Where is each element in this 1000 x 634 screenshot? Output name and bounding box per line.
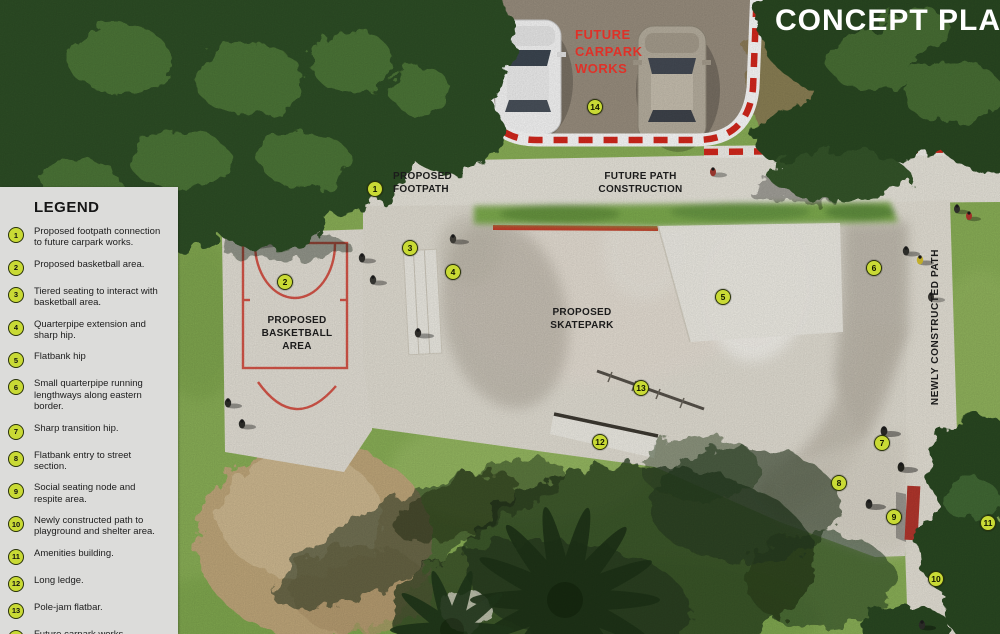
legend-item-text: Flatbank hip bbox=[34, 351, 164, 362]
legend-item-number: 13 bbox=[8, 603, 24, 619]
legend-item-number: 4 bbox=[8, 320, 24, 336]
legend-item-text: Quarterpipe extension and sharp hip. bbox=[34, 319, 164, 342]
legend-item-number: 7 bbox=[8, 424, 24, 440]
legend-list: 1Proposed footpath connection to future … bbox=[0, 226, 178, 634]
legend-item-2: 2Proposed basketball area. bbox=[8, 259, 178, 276]
label-newly-constructed-path: NEWLY CONSTRUCTED PATH bbox=[930, 227, 944, 427]
legend-panel: LEGEND 1Proposed footpath connection to … bbox=[0, 187, 178, 634]
legend-item-number: 10 bbox=[8, 516, 24, 532]
legend-item-number: 11 bbox=[8, 549, 24, 565]
legend-item-8: 8Flatbank entry to street section. bbox=[8, 450, 178, 473]
legend-item-14: 14Future carpark works. bbox=[8, 629, 178, 634]
legend-item-number: 9 bbox=[8, 483, 24, 499]
legend-item-1: 1Proposed footpath connection to future … bbox=[8, 226, 178, 249]
screenshot-root: CONCEPT PLAN FUTURE CARPARK WORKS PROPOS… bbox=[0, 0, 1000, 634]
legend-item-text: Proposed footpath connection to future c… bbox=[34, 226, 164, 249]
legend-item-number: 1 bbox=[8, 227, 24, 243]
plan-marker-13: 13 bbox=[633, 380, 649, 396]
plan-marker-3: 3 bbox=[402, 240, 418, 256]
label-proposed-basketball-area: PROPOSED BASKETBALL AREA bbox=[245, 314, 349, 354]
legend-item-12: 12Long ledge. bbox=[8, 575, 178, 592]
legend-item-number: 2 bbox=[8, 260, 24, 276]
legend-item-text: Flatbank entry to street section. bbox=[34, 450, 164, 473]
plan-marker-4: 4 bbox=[445, 264, 461, 280]
legend-item-text: Pole-jam flatbar. bbox=[34, 602, 164, 613]
plan-marker-6: 6 bbox=[866, 260, 882, 276]
legend-item-11: 11Amenities building. bbox=[8, 548, 178, 565]
plan-marker-11: 11 bbox=[980, 515, 996, 531]
legend-item-text: Amenities building. bbox=[34, 548, 164, 559]
legend-item-text: Newly constructed path to playground and… bbox=[34, 515, 164, 538]
legend-item-4: 4Quarterpipe extension and sharp hip. bbox=[8, 319, 178, 342]
plan-marker-12: 12 bbox=[592, 434, 608, 450]
label-future-path-construction: FUTURE PATH CONSTRUCTION bbox=[583, 170, 698, 196]
label-proposed-skatepark: PROPOSED SKATEPARK bbox=[530, 306, 634, 332]
legend-item-10: 10Newly constructed path to playground a… bbox=[8, 515, 178, 538]
page-title: CONCEPT PLAN bbox=[775, 4, 1000, 38]
plan-marker-14: 14 bbox=[587, 99, 603, 115]
legend-item-number: 14 bbox=[8, 630, 24, 634]
legend-item-6: 6Small quarterpipe running lengthways al… bbox=[8, 378, 178, 412]
legend-item-7: 7Sharp transition hip. bbox=[8, 423, 178, 440]
legend-item-text: Long ledge. bbox=[34, 575, 164, 586]
legend-item-text: Future carpark works. bbox=[34, 629, 164, 634]
plan-marker-8: 8 bbox=[831, 475, 847, 491]
legend-item-text: Proposed basketball area. bbox=[34, 259, 164, 270]
legend-item-text: Sharp transition hip. bbox=[34, 423, 164, 434]
legend-item-5: 5Flatbank hip bbox=[8, 351, 178, 368]
legend-item-13: 13Pole-jam flatbar. bbox=[8, 602, 178, 619]
plan-marker-1: 1 bbox=[367, 181, 383, 197]
legend-item-number: 5 bbox=[8, 352, 24, 368]
legend-item-3: 3Tiered seating to interact with basketb… bbox=[8, 286, 178, 309]
label-future-carpark-works: FUTURE CARPARK WORKS bbox=[575, 26, 643, 77]
plan-marker-10: 10 bbox=[928, 571, 944, 587]
legend-item-9: 9Social seating node and respite area. bbox=[8, 482, 178, 505]
plan-marker-5: 5 bbox=[715, 289, 731, 305]
legend-item-text: Small quarterpipe running lengthways alo… bbox=[34, 378, 164, 412]
plan-marker-7: 7 bbox=[874, 435, 890, 451]
legend-item-number: 8 bbox=[8, 451, 24, 467]
legend-item-text: Tiered seating to interact with basketba… bbox=[34, 286, 164, 309]
legend-item-number: 3 bbox=[8, 287, 24, 303]
legend-item-number: 12 bbox=[8, 576, 24, 592]
plan-marker-2: 2 bbox=[277, 274, 293, 290]
label-proposed-footpath: PROPOSED FOOTPATH bbox=[393, 170, 452, 196]
legend-item-text: Social seating node and respite area. bbox=[34, 482, 164, 505]
legend-item-number: 6 bbox=[8, 379, 24, 395]
plan-marker-9: 9 bbox=[886, 509, 902, 525]
legend-title: LEGEND bbox=[34, 199, 178, 216]
